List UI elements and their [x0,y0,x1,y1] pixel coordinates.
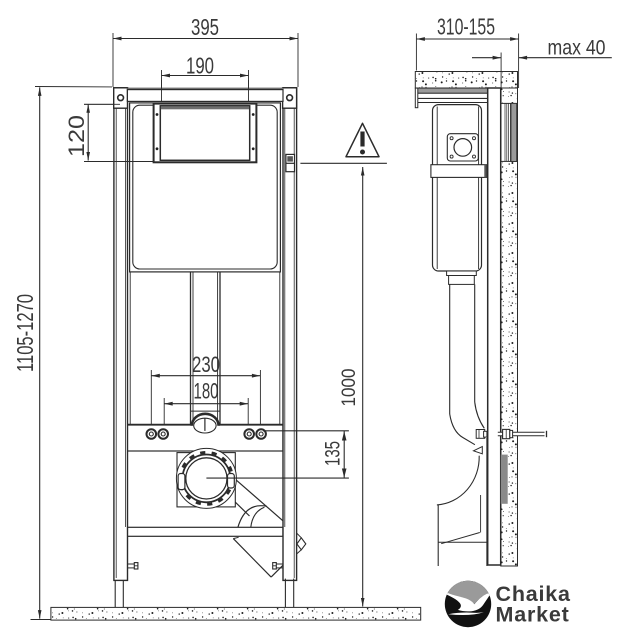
svg-text:395: 395 [191,14,219,40]
svg-text:120: 120 [64,115,89,157]
svg-text:max 40: max 40 [548,37,606,60]
svg-text:230: 230 [192,352,220,377]
svg-text:190: 190 [186,53,214,79]
svg-text:135: 135 [322,441,345,466]
svg-text:1000: 1000 [339,369,360,407]
svg-text:1105-1270: 1105-1270 [12,294,38,372]
svg-text:Market: Market [496,603,570,627]
svg-text:310-155: 310-155 [437,14,495,40]
svg-text:180: 180 [194,379,219,404]
